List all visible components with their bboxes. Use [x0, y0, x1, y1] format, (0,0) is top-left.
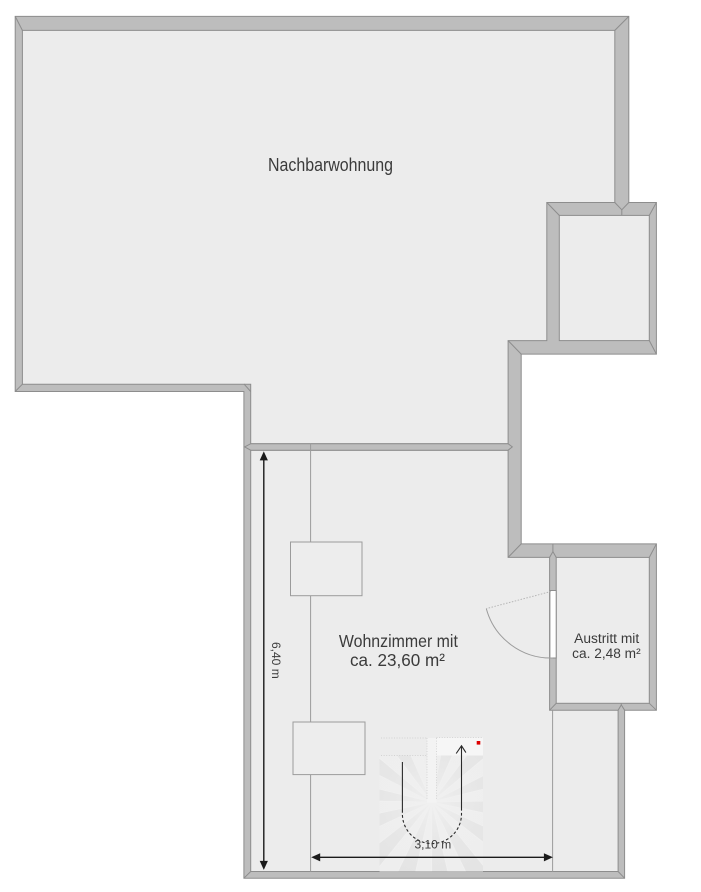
svg-text:Wohnzimmer mit: Wohnzimmer mit — [339, 631, 458, 651]
svg-text:3,10 m: 3,10 m — [415, 837, 452, 851]
svg-text:Austritt mit: Austritt mit — [574, 631, 639, 646]
svg-text:Nachbarwohnung: Nachbarwohnung — [268, 155, 393, 175]
svg-text:ca. 23,60 m²: ca. 23,60 m² — [350, 650, 445, 670]
svg-text:ca. 2,48 m²: ca. 2,48 m² — [572, 646, 641, 661]
svg-text:6,40 m: 6,40 m — [269, 642, 283, 679]
